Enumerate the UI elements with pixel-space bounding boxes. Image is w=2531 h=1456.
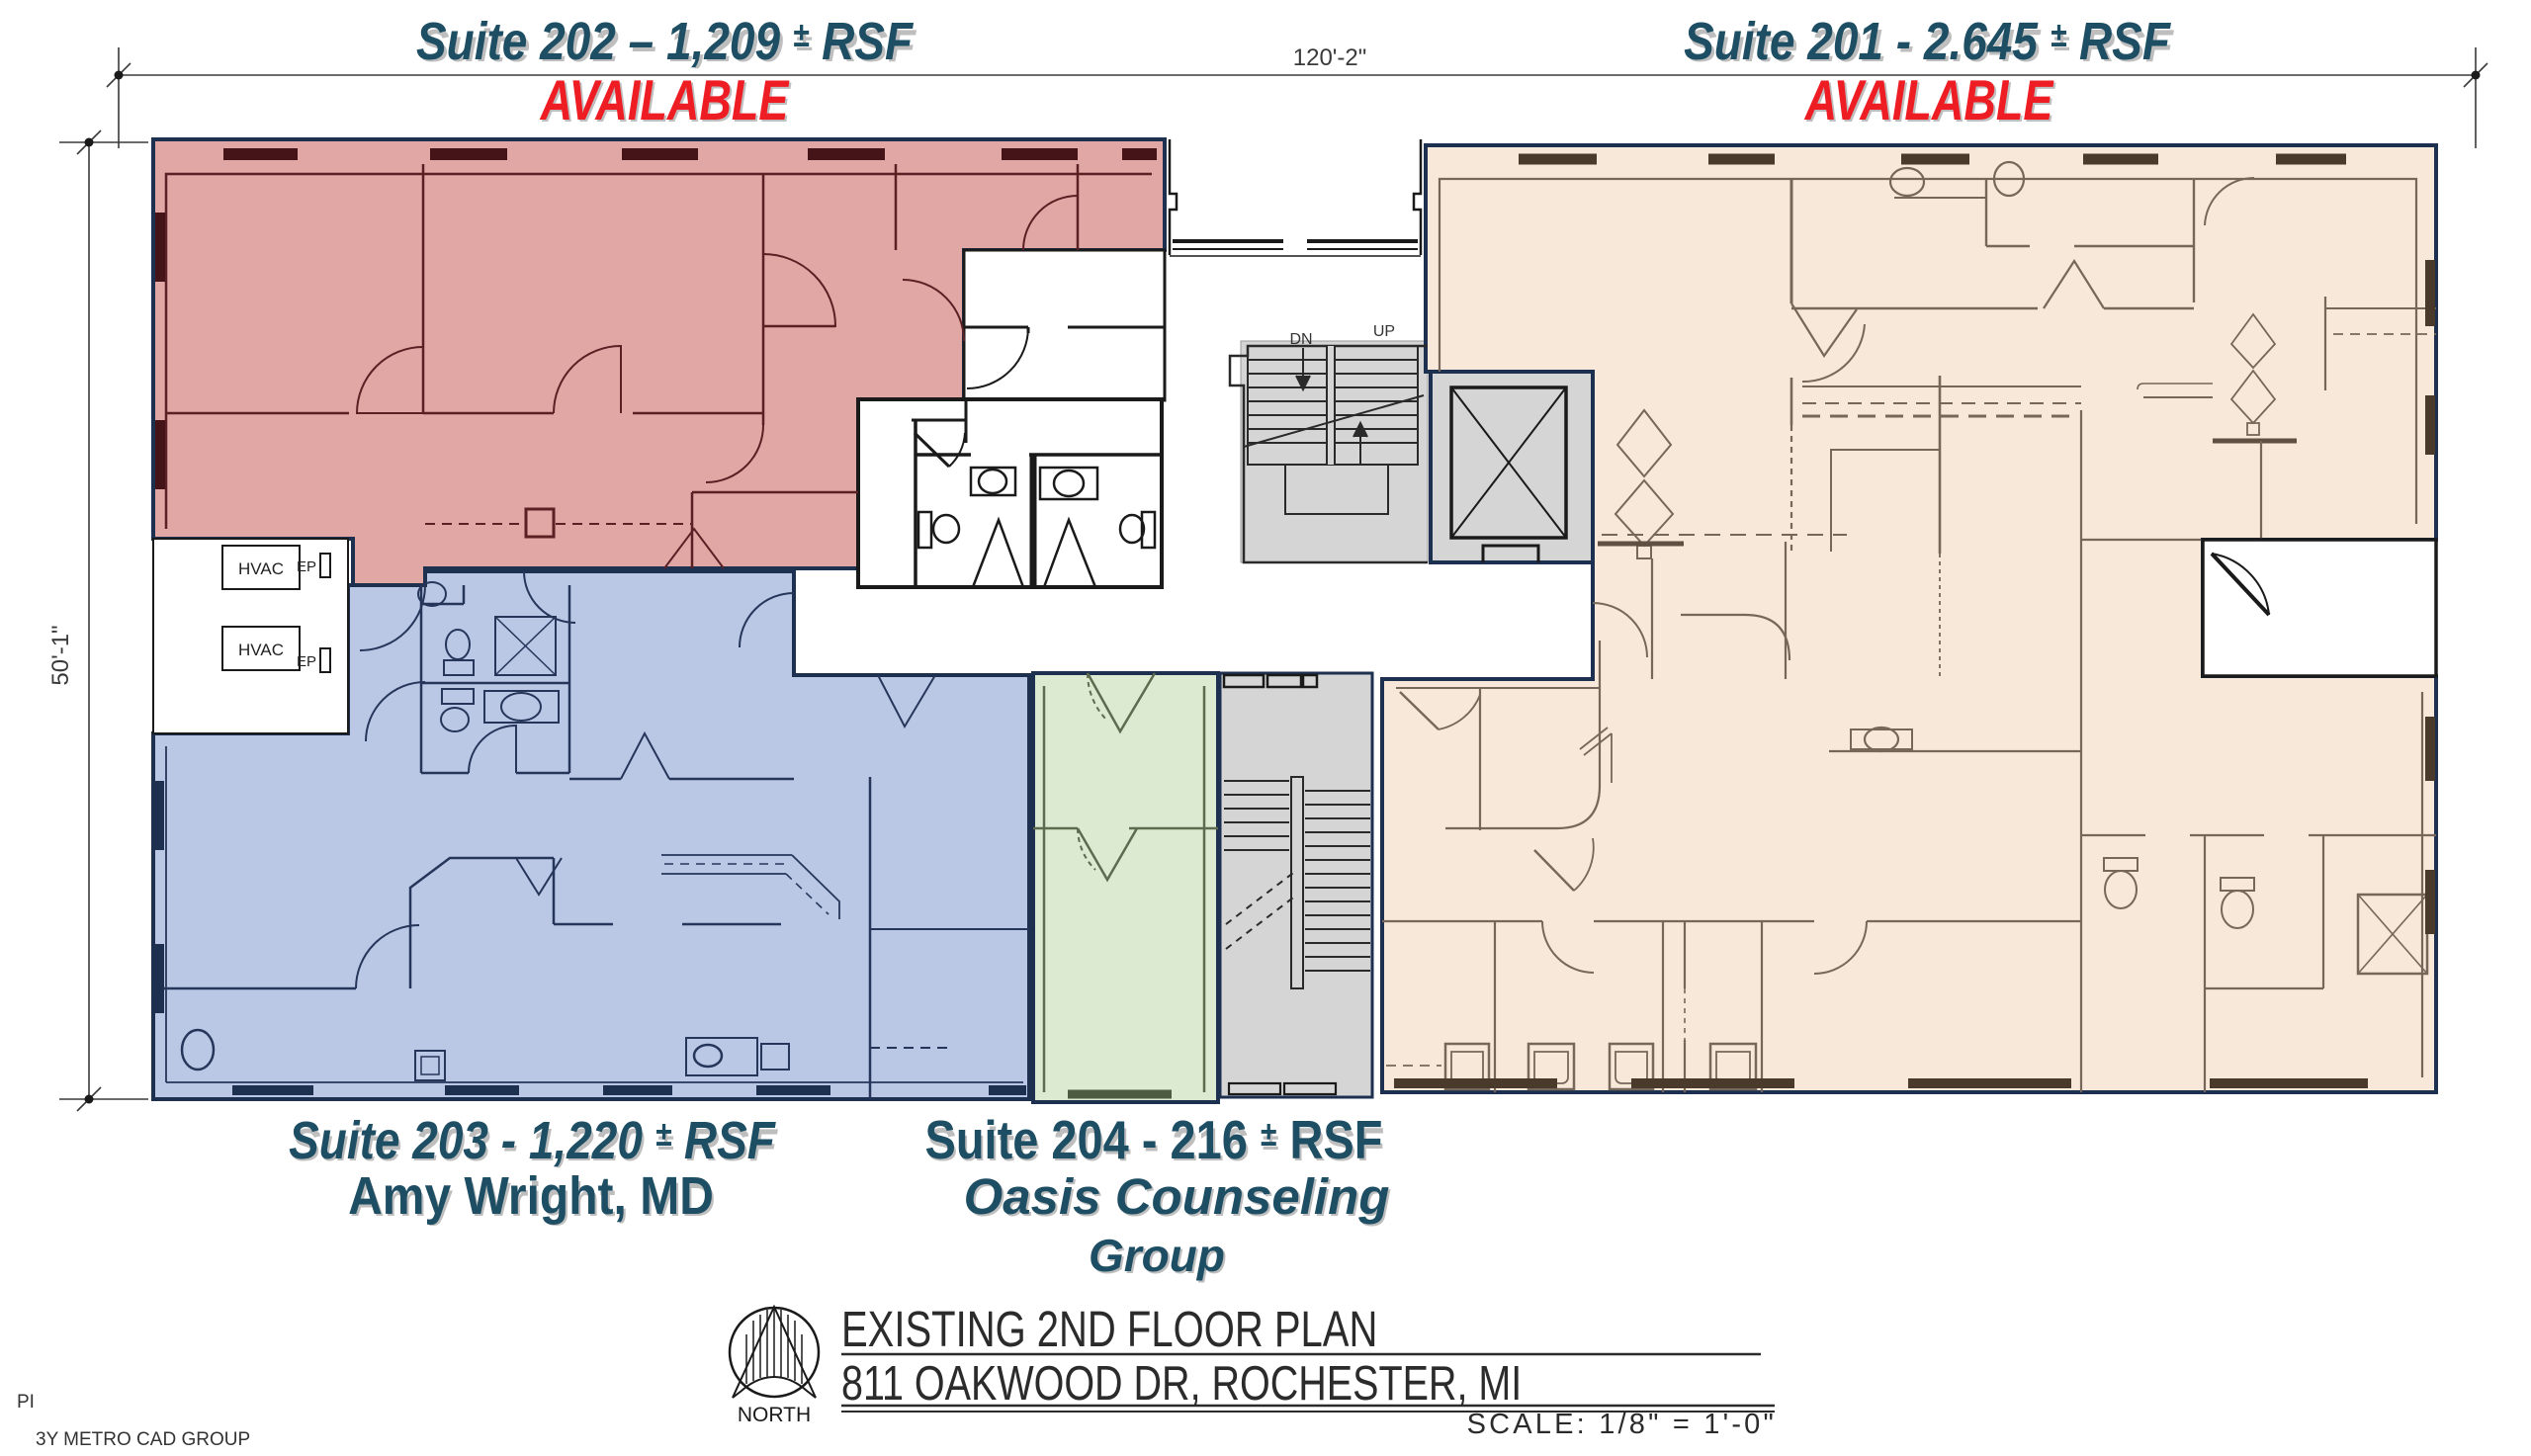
svg-text:Suite 204 - 216 ± RSF: Suite 204 - 216 ± RSF xyxy=(925,1110,1383,1170)
svg-text:DN: DN xyxy=(1289,331,1312,348)
svg-text:SCALE: 1/8" = 1'-0": SCALE: 1/8" = 1'-0" xyxy=(1467,1409,1777,1440)
svg-text:Suite 201 - 2.645 ± RSF: Suite 201 - 2.645 ± RSF xyxy=(1684,12,2171,71)
svg-text:HVAC: HVAC xyxy=(238,559,284,578)
svg-text:Suite 202 – 1,209 ± RSF: Suite 202 – 1,209 ± RSF xyxy=(416,12,915,71)
svg-text:AVAILABLE: AVAILABLE xyxy=(539,68,790,132)
svg-text:EP: EP xyxy=(297,653,316,670)
svg-text:Oasis Counseling: Oasis Counseling xyxy=(964,1168,1390,1225)
svg-text:120'-2": 120'-2" xyxy=(1293,44,1366,71)
svg-text:EXISTING 2ND FLOOR PLAN: EXISTING 2ND FLOOR PLAN xyxy=(841,1301,1377,1357)
svg-text:Group: Group xyxy=(1089,1230,1225,1281)
svg-text:Amy Wright, MD: Amy Wright, MD xyxy=(348,1165,714,1225)
svg-text:Suite 203 - 1,220 ± RSF: Suite 203 - 1,220 ± RSF xyxy=(289,1111,776,1170)
svg-text:UP: UP xyxy=(1373,323,1395,340)
svg-text:811 OAKWOOD DR, ROCHESTER, MI: 811 OAKWOOD DR, ROCHESTER, MI xyxy=(841,1357,1522,1411)
svg-text:50'-1": 50'-1" xyxy=(47,625,74,685)
svg-text:EP: EP xyxy=(297,558,316,575)
svg-text:PI: PI xyxy=(17,1392,35,1413)
svg-text:AVAILABLE: AVAILABLE xyxy=(1803,68,2054,132)
svg-text:3Y METRO CAD GROUP: 3Y METRO CAD GROUP xyxy=(36,1429,250,1450)
svg-text:NORTH: NORTH xyxy=(738,1404,811,1426)
svg-text:HVAC: HVAC xyxy=(238,641,284,659)
